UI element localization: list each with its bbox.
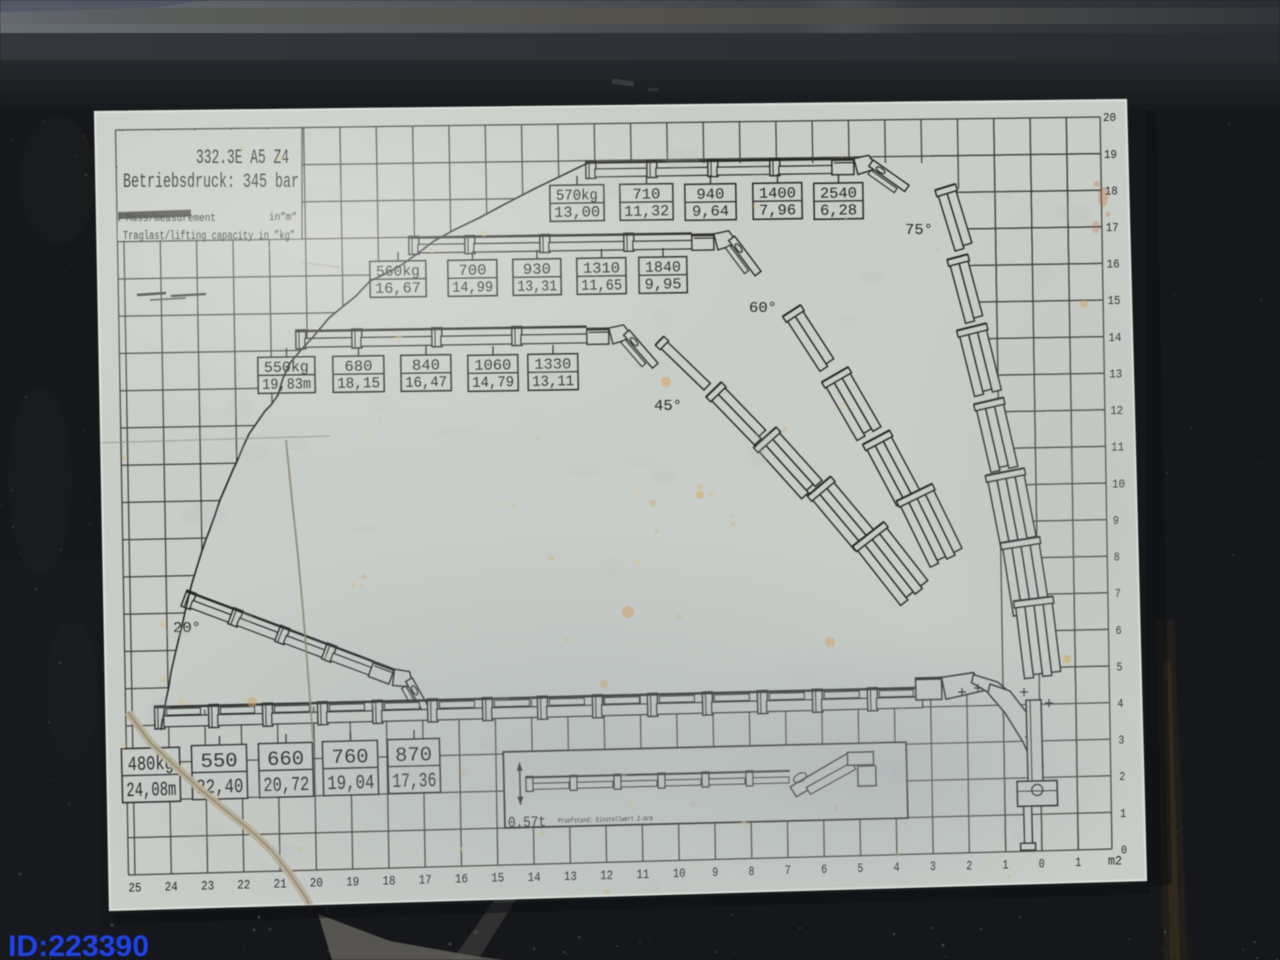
svg-text:19: 19 <box>1104 148 1117 162</box>
svg-text:75°: 75° <box>905 222 933 239</box>
svg-text:45°: 45° <box>654 398 682 415</box>
svg-text:7,96: 7,96 <box>759 202 796 220</box>
svg-text:60°: 60° <box>749 300 777 317</box>
svg-text:m2: m2 <box>1108 855 1122 869</box>
svg-text:2540: 2540 <box>820 185 857 203</box>
svg-text:1400: 1400 <box>759 185 796 203</box>
svg-text:20: 20 <box>1103 111 1116 125</box>
svg-text:25: 25 <box>129 881 142 895</box>
svg-text:ID:223390: ID:223390 <box>8 930 149 960</box>
svg-text:6,28: 6,28 <box>820 202 857 220</box>
